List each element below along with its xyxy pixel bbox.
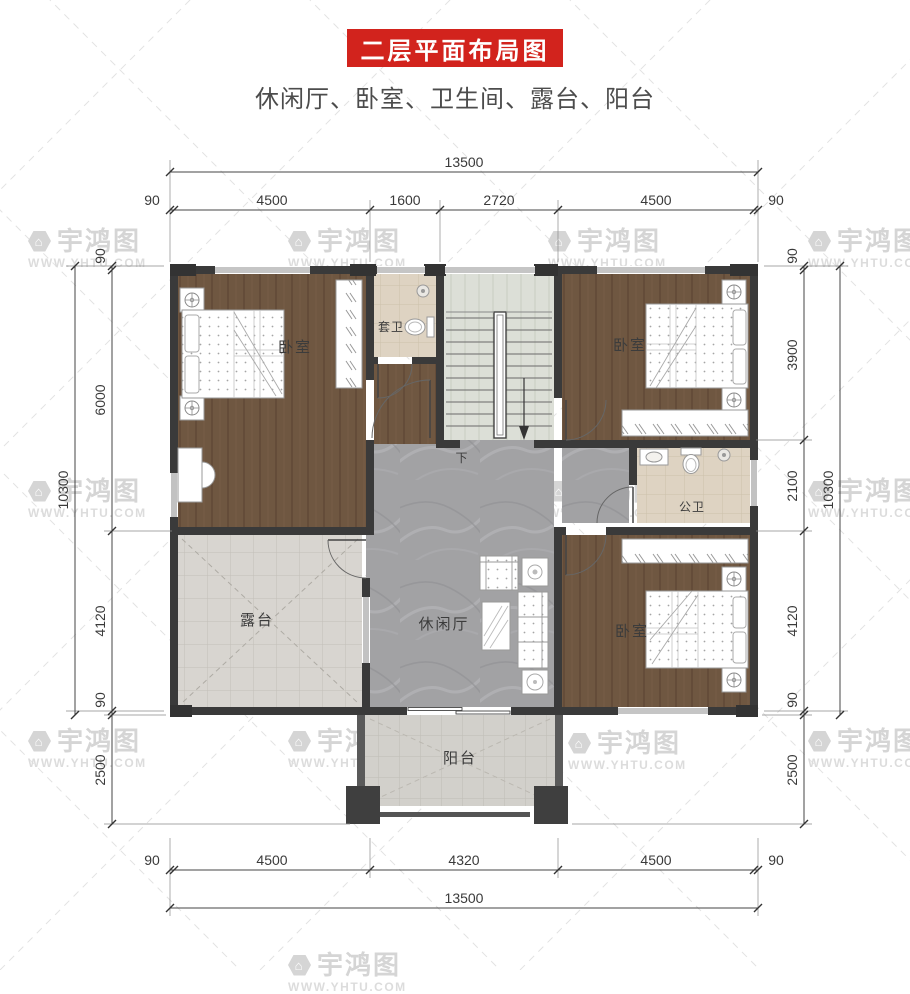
dim-bottom-90l: 90 (144, 852, 160, 868)
wardrobe (622, 410, 748, 436)
dim-right-90t: 90 (784, 248, 800, 264)
dim-top-1600: 1600 (389, 192, 420, 208)
dimension-labels-left: 90 6000 4120 90 2500 10300 (55, 248, 108, 786)
balcony-pillar-left (346, 786, 380, 824)
stair-stringer (494, 312, 506, 438)
window (750, 460, 758, 506)
dim-left-6000: 6000 (92, 384, 108, 415)
stairs-down-label: 下 (455, 451, 468, 465)
bath-corridor-floor (562, 448, 629, 523)
window (377, 266, 425, 274)
dim-bottom-4320: 4320 (448, 852, 479, 868)
page-title-banner: 二层平面布局图 (347, 29, 563, 67)
leisure-hall-label: 休闲厅 (418, 616, 469, 633)
page-title: 二层平面布局图 (361, 31, 550, 66)
window (618, 707, 708, 715)
dim-left-2500: 2500 (92, 754, 108, 785)
dim-bottom-4500l: 4500 (256, 852, 287, 868)
window (445, 266, 535, 274)
dim-left-90t: 90 (92, 248, 108, 264)
dim-top-total: 13500 (445, 154, 484, 170)
dim-right-4120: 4120 (784, 605, 800, 636)
sliding-door (407, 707, 511, 715)
bed (182, 310, 284, 398)
long-sofa (518, 592, 548, 668)
dim-right-90b: 90 (784, 692, 800, 708)
window (597, 266, 705, 274)
public-bath-label: 公卫 (679, 500, 705, 514)
side-table (522, 558, 548, 586)
dim-top-90r: 90 (768, 192, 784, 208)
dim-left-90b: 90 (92, 692, 108, 708)
dim-bottom-total: 13500 (445, 890, 484, 906)
window (215, 266, 310, 274)
dim-bottom-4500r: 4500 (640, 852, 671, 868)
wardrobe (336, 280, 362, 388)
dim-top-4500r: 4500 (640, 192, 671, 208)
window (362, 597, 370, 663)
ensuite-bath-label: 套卫 (378, 320, 404, 334)
bed (646, 591, 748, 668)
bedroom-top-right-label: 卧室 (613, 337, 647, 354)
dim-top-90l: 90 (144, 192, 160, 208)
round-stool (522, 670, 548, 694)
window (170, 473, 178, 517)
balcony-pillar-right (534, 786, 568, 824)
dim-top-2720: 2720 (483, 192, 514, 208)
dim-left-total: 10300 (55, 470, 71, 509)
wardrobe (622, 539, 748, 563)
bedroom-bottom-right-label: 卧室 (615, 623, 649, 640)
toilet-tank (427, 317, 434, 337)
dimension-labels-top: 13500 90 4500 1600 2720 4500 90 (144, 154, 784, 208)
dimension-labels-right: 90 3900 2100 4120 90 2500 10300 (784, 248, 836, 786)
page-subtitle: 休闲厅、卧室、卫生间、露台、阳台 (0, 79, 910, 114)
dim-bottom-90r: 90 (768, 852, 784, 868)
dim-left-4120: 4120 (92, 605, 108, 636)
toilet (683, 455, 699, 474)
bed (646, 304, 748, 388)
dim-right-2100: 2100 (784, 470, 800, 501)
dim-right-total: 10300 (820, 470, 836, 509)
balcony-label: 阳台 (443, 750, 477, 767)
dim-right-3900: 3900 (784, 339, 800, 370)
dim-top-4500l: 4500 (256, 192, 287, 208)
tea-table (482, 602, 510, 650)
floor-plan-drawing: 卧室 套卫 卧室 公卫 卧室 露台 休闲厅 阳台 下 13500 90 4500… (0, 0, 910, 970)
single-sofa (480, 556, 518, 590)
dimension-labels-bottom: 90 4500 4320 4500 90 13500 (144, 852, 784, 906)
watermark-site: WWW.YHTU.COM (288, 980, 407, 994)
terrace-label: 露台 (240, 612, 274, 629)
bedroom-left-label: 卧室 (278, 339, 312, 356)
floor-plan-page: { "title": "二层平面布局图", "subtitle": "休闲厅、卧… (0, 0, 910, 970)
dim-right-2500: 2500 (784, 754, 800, 785)
toilet-tank (681, 448, 701, 455)
